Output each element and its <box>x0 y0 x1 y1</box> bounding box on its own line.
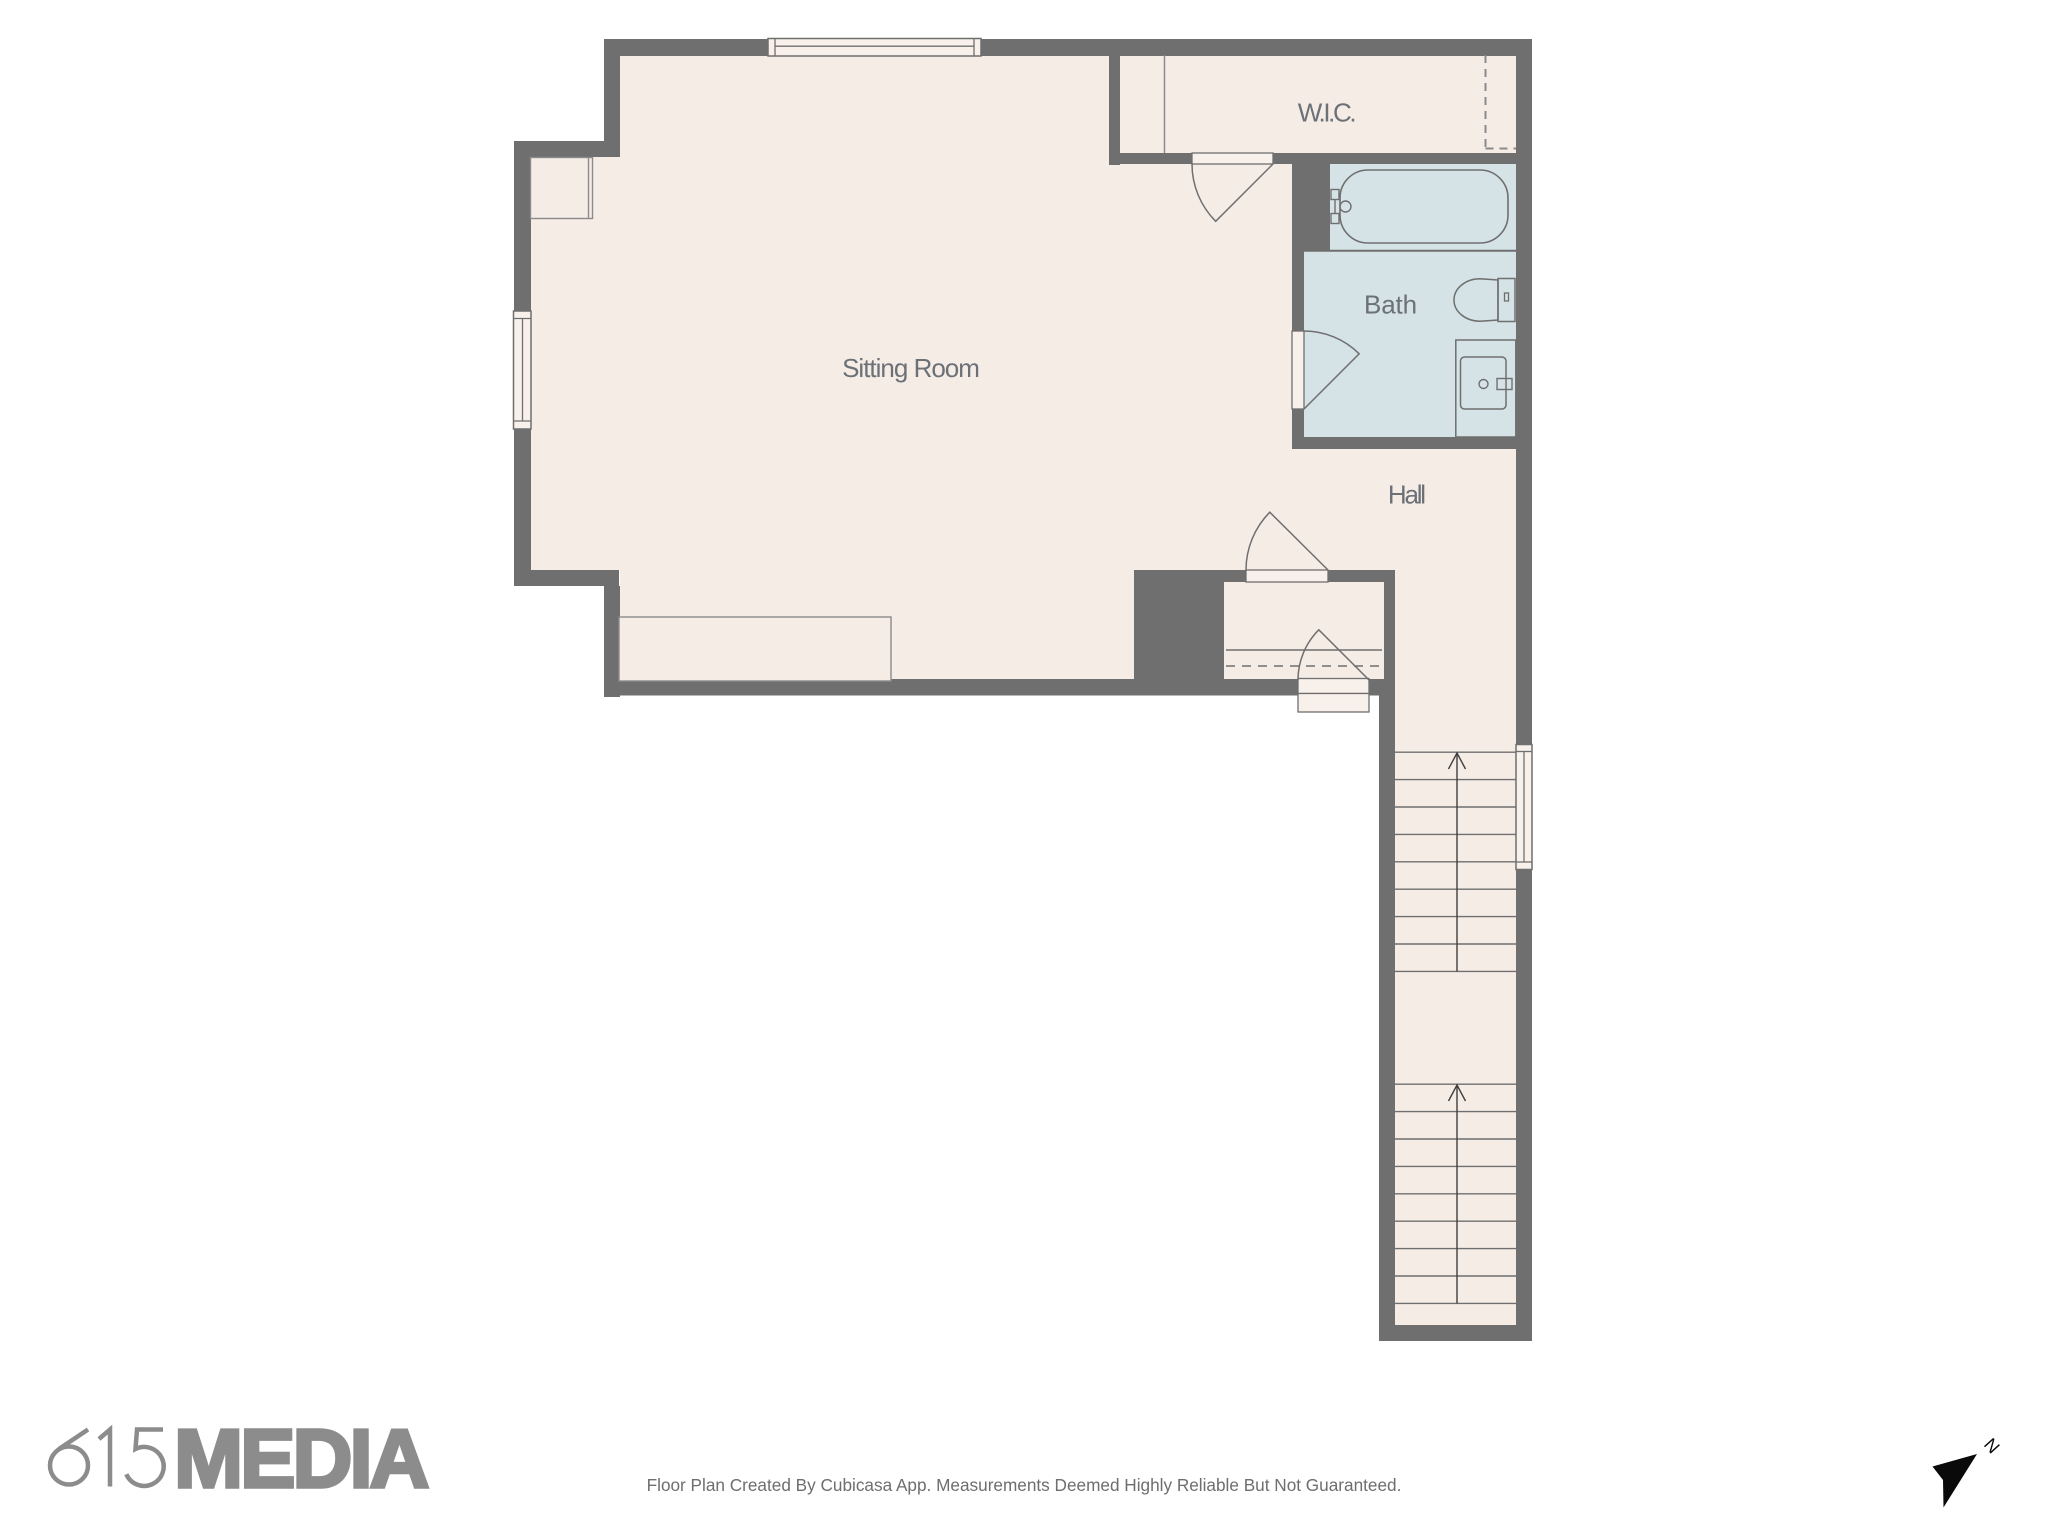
svg-text:MEDIA: MEDIA <box>174 1412 428 1505</box>
svg-text:N: N <box>1980 1434 2004 1457</box>
svg-text:Hall: Hall <box>1388 479 1425 509</box>
svg-text:W.I.C.: W.I.C. <box>1298 97 1355 127</box>
svg-text:Floor Plan Created By Cubicasa: Floor Plan Created By Cubicasa App. Meas… <box>647 1475 1402 1495</box>
svg-text:Sitting Room: Sitting Room <box>842 353 979 383</box>
svg-text:Bath: Bath <box>1364 290 1417 320</box>
